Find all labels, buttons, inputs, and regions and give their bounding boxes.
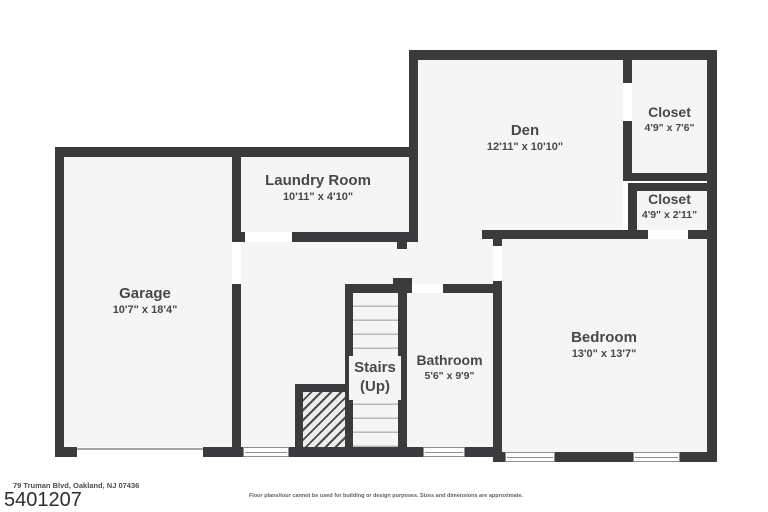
wall-closet-lower-top <box>628 183 717 191</box>
window-bathroom-bottom <box>423 447 465 457</box>
wall-exterior-left <box>55 147 64 457</box>
bedroom-door-opening <box>493 246 502 281</box>
room-name: Closet <box>607 104 732 122</box>
wall-closet-upper-bottom <box>623 173 717 181</box>
wall-hatch-closet-left <box>295 384 303 447</box>
room-name: Den <box>445 122 605 141</box>
window-bedroom-bottom-right <box>633 452 680 462</box>
wall-stub-stairs-top <box>397 240 407 249</box>
label-closet-lower: Closet 4'9" x 2'11" <box>607 191 732 222</box>
room-name: Bathroom <box>387 352 512 370</box>
label-garage: Garage 10'7" x 18'4" <box>65 285 225 318</box>
room-name: Garage <box>65 285 225 304</box>
wall-bedroom-left-stub <box>493 239 502 246</box>
room-name: Closet <box>607 191 732 209</box>
under-stairs-hatch <box>303 392 345 447</box>
label-bedroom: Bedroom 13'0" x 13'7" <box>524 329 684 362</box>
wall-bottom-segment <box>289 447 423 457</box>
wall-bottom-segment <box>203 447 243 457</box>
hallway-den-opening <box>418 228 482 242</box>
room-dimensions: 4'9" x 2'11" <box>607 209 732 222</box>
closet-lower-door-opening <box>648 230 688 239</box>
window-bedroom-bottom-left <box>505 452 555 462</box>
window-hallway-bottom <box>243 447 289 457</box>
room-dimensions: 12'11" x 10'10" <box>445 141 605 155</box>
label-stairs: Stairs (Up) <box>349 356 401 400</box>
floor-plan: Garage 10'7" x 18'4" Laundry Room 10'11"… <box>0 0 768 512</box>
hallway-floor <box>240 240 493 284</box>
room-dimensions: 10'7" x 18'4" <box>65 304 225 318</box>
garage-door-line <box>77 448 203 450</box>
wall-bathroom-top-segment <box>443 284 502 293</box>
wall-bedroom-bottom-segment <box>493 452 505 462</box>
wall-closet-upper-left-segment <box>623 60 632 83</box>
label-bathroom: Bathroom 5'6" x 9'9" <box>387 352 512 383</box>
wall-bedroom-bottom-segment <box>555 452 633 462</box>
wall-den-left-exterior <box>409 50 418 240</box>
wall-bedroom-bottom-segment <box>680 452 717 462</box>
garage-hall-door-opening <box>232 240 241 284</box>
disclaimer-text: Floor plans/tour cannot be used for buil… <box>230 493 542 499</box>
wall-den-bottom-segment <box>482 230 648 239</box>
stairs-direction: (Up) <box>349 378 401 397</box>
room-dimensions: 10'11" x 4'10" <box>238 191 398 205</box>
wall-exterior-top-den <box>409 50 717 60</box>
bathroom-door-opening <box>412 284 443 293</box>
label-closet-upper: Closet 4'9" x 7'6" <box>607 104 732 135</box>
listing-number: 5401207 <box>4 489 82 512</box>
wall-den-bottom-segment <box>688 230 717 239</box>
room-name: Bedroom <box>524 329 684 348</box>
wall-bottom-segment <box>55 447 77 457</box>
label-den: Den 12'11" x 10'10" <box>445 122 605 155</box>
wall-hatch-closet-top <box>295 384 353 392</box>
wall-garage-right-lower <box>232 284 241 447</box>
label-laundry: Laundry Room 10'11" x 4'10" <box>238 172 398 205</box>
wall-laundry-bottom-segment <box>232 232 245 242</box>
room-dimensions: 4'9" x 7'6" <box>607 122 732 135</box>
room-dimensions: 13'0" x 13'7" <box>524 348 684 362</box>
room-name: Laundry Room <box>238 172 398 191</box>
room-name: Stairs <box>349 359 401 378</box>
room-dimensions: 5'6" x 9'9" <box>387 370 512 383</box>
laundry-door-opening <box>245 232 292 242</box>
